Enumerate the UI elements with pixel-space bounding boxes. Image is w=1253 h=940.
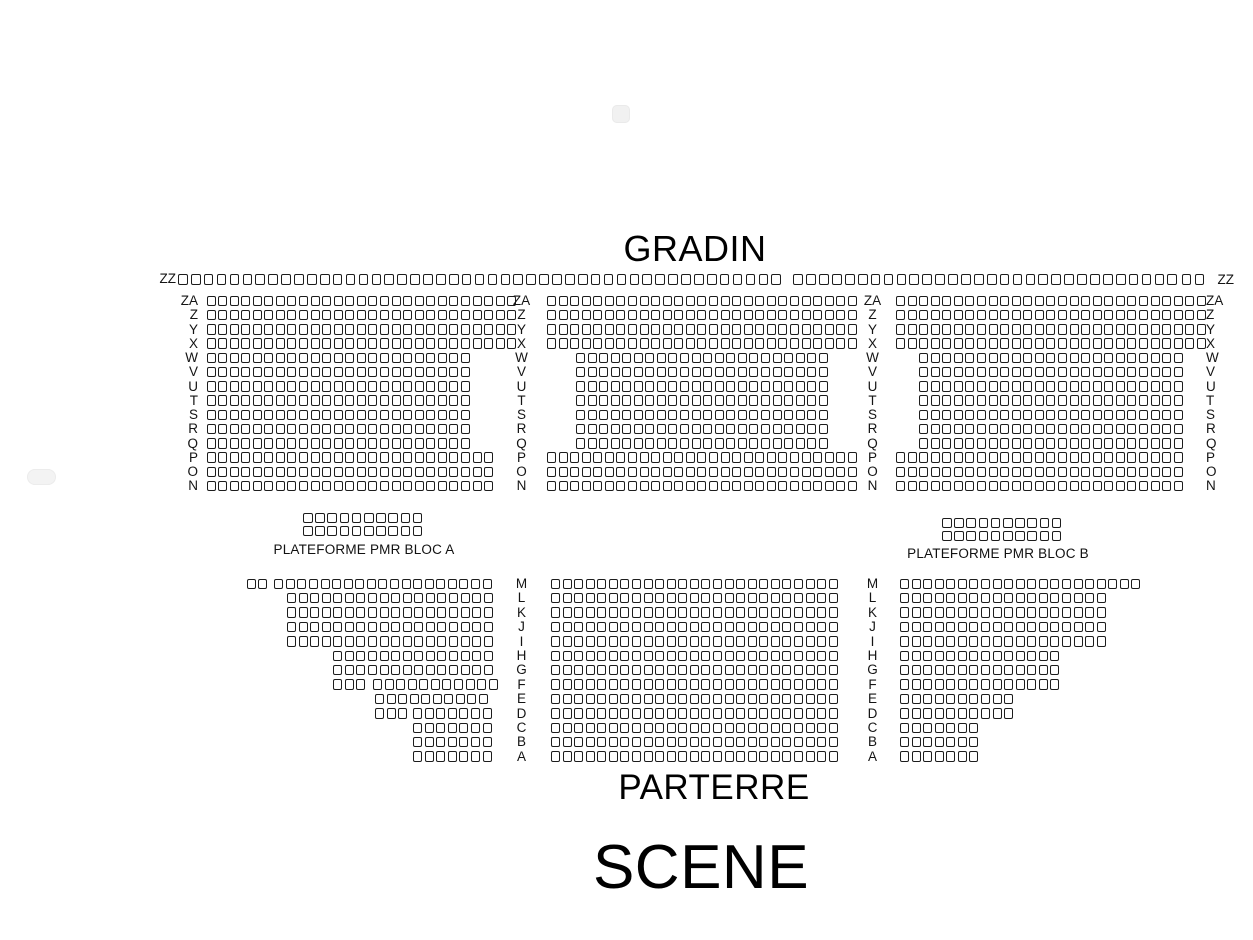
seat[interactable] (912, 579, 921, 590)
seat[interactable] (813, 338, 822, 349)
seat[interactable] (438, 353, 447, 364)
seat[interactable] (321, 579, 330, 590)
seat[interactable] (977, 310, 986, 321)
seat[interactable] (732, 338, 741, 349)
seat[interactable] (738, 395, 747, 406)
seat[interactable] (1023, 353, 1032, 364)
seat[interactable] (657, 395, 666, 406)
seat[interactable] (680, 353, 689, 364)
seat[interactable] (701, 679, 710, 690)
seat[interactable] (563, 737, 572, 748)
seat[interactable] (380, 395, 389, 406)
seat[interactable] (790, 481, 799, 492)
seat[interactable] (333, 665, 342, 676)
seat[interactable] (415, 410, 424, 421)
seat[interactable] (958, 751, 967, 762)
seat[interactable] (807, 353, 816, 364)
seat[interactable] (287, 636, 296, 647)
seat[interactable] (413, 513, 423, 523)
seat[interactable] (989, 452, 998, 463)
seat[interactable] (931, 481, 940, 492)
seat[interactable] (415, 452, 424, 463)
seat[interactable] (241, 324, 250, 335)
seat[interactable] (1027, 607, 1036, 618)
seat[interactable] (979, 531, 989, 541)
seat[interactable] (942, 381, 951, 392)
seat[interactable] (276, 353, 285, 364)
seat[interactable] (334, 367, 343, 378)
seat[interactable] (449, 636, 458, 647)
seat[interactable] (368, 438, 377, 449)
seat[interactable] (1081, 338, 1090, 349)
seat[interactable] (912, 651, 921, 662)
seat[interactable] (1023, 395, 1032, 406)
seat[interactable] (836, 467, 845, 478)
seat[interactable] (586, 665, 595, 676)
seat[interactable] (1085, 579, 1094, 590)
seat[interactable] (1004, 636, 1013, 647)
seat[interactable] (655, 708, 664, 719)
seat[interactable] (725, 694, 734, 705)
seat[interactable] (622, 410, 631, 421)
seat[interactable] (736, 737, 745, 748)
seat[interactable] (697, 452, 706, 463)
seat[interactable] (935, 579, 944, 590)
seat[interactable] (807, 438, 816, 449)
seat[interactable] (935, 723, 944, 734)
seat[interactable] (923, 694, 932, 705)
seat[interactable] (1103, 274, 1113, 285)
seat[interactable] (207, 296, 216, 307)
seat[interactable] (1162, 310, 1171, 321)
seat[interactable] (1035, 481, 1044, 492)
seat[interactable] (477, 679, 486, 690)
seat[interactable] (782, 751, 791, 762)
seat[interactable] (461, 438, 470, 449)
seat[interactable] (489, 679, 498, 690)
seat[interactable] (1004, 607, 1013, 618)
seat[interactable] (620, 723, 629, 734)
seat[interactable] (1167, 274, 1177, 285)
seat[interactable] (471, 737, 480, 748)
seat[interactable] (1085, 622, 1094, 633)
seat[interactable] (989, 381, 998, 392)
seat[interactable] (667, 723, 676, 734)
seat[interactable] (253, 381, 262, 392)
seat[interactable] (483, 723, 492, 734)
seat[interactable] (345, 622, 354, 633)
seat[interactable] (605, 481, 614, 492)
seat[interactable] (736, 694, 745, 705)
seat[interactable] (692, 367, 701, 378)
seat[interactable] (825, 324, 834, 335)
seat[interactable] (794, 751, 803, 762)
seat[interactable] (570, 324, 579, 335)
seat[interactable] (586, 694, 595, 705)
seat[interactable] (287, 353, 296, 364)
seat[interactable] (436, 274, 446, 285)
seat[interactable] (526, 274, 536, 285)
seat[interactable] (449, 410, 458, 421)
seat[interactable] (954, 395, 963, 406)
seat[interactable] (449, 452, 458, 463)
seat[interactable] (403, 467, 412, 478)
seat[interactable] (207, 410, 216, 421)
seat[interactable] (344, 579, 353, 590)
seat[interactable] (311, 381, 320, 392)
seat[interactable] (345, 367, 354, 378)
seat[interactable] (1127, 338, 1136, 349)
seat[interactable] (703, 410, 712, 421)
seat[interactable] (484, 607, 493, 618)
seat[interactable] (782, 679, 791, 690)
seat[interactable] (425, 708, 434, 719)
seat[interactable] (1027, 651, 1036, 662)
seat[interactable] (634, 424, 643, 435)
seat[interactable] (736, 651, 745, 662)
seat[interactable] (364, 526, 374, 536)
seat[interactable] (605, 467, 614, 478)
seat[interactable] (697, 481, 706, 492)
seat[interactable] (276, 410, 285, 421)
seat[interactable] (413, 751, 422, 762)
seat[interactable] (680, 395, 689, 406)
seat[interactable] (965, 481, 974, 492)
seat[interactable] (713, 694, 722, 705)
seat[interactable] (908, 310, 917, 321)
seat[interactable] (954, 381, 963, 392)
seat[interactable] (919, 310, 928, 321)
seat[interactable] (912, 665, 921, 676)
seat[interactable] (644, 708, 653, 719)
seat[interactable] (1046, 310, 1055, 321)
seat[interactable] (1062, 622, 1071, 633)
seat[interactable] (782, 636, 791, 647)
seat[interactable] (345, 338, 354, 349)
seat[interactable] (392, 367, 401, 378)
seat[interactable] (942, 310, 951, 321)
seat[interactable] (413, 526, 423, 536)
seat[interactable] (1127, 424, 1136, 435)
seat[interactable] (437, 665, 446, 676)
seat[interactable] (230, 324, 239, 335)
seat[interactable] (942, 531, 952, 541)
seat[interactable] (403, 607, 412, 618)
seat[interactable] (935, 274, 945, 285)
seat[interactable] (484, 481, 493, 492)
seat[interactable] (977, 367, 986, 378)
seat[interactable] (287, 381, 296, 392)
seat[interactable] (958, 694, 967, 705)
seat[interactable] (802, 310, 811, 321)
seat[interactable] (426, 324, 435, 335)
seat[interactable] (782, 708, 791, 719)
seat[interactable] (380, 651, 389, 662)
seat[interactable] (825, 481, 834, 492)
seat[interactable] (1070, 481, 1079, 492)
seat[interactable] (977, 381, 986, 392)
seat[interactable] (794, 622, 803, 633)
seat[interactable] (586, 737, 595, 748)
seat[interactable] (392, 324, 401, 335)
seat[interactable] (1058, 310, 1067, 321)
seat[interactable] (655, 723, 664, 734)
seat[interactable] (1093, 410, 1102, 421)
seat[interactable] (484, 665, 493, 676)
seat[interactable] (472, 622, 481, 633)
seat[interactable] (697, 324, 706, 335)
seat[interactable] (609, 708, 618, 719)
seat[interactable] (462, 274, 472, 285)
seat[interactable] (993, 708, 1002, 719)
seat[interactable] (551, 737, 560, 748)
seat[interactable] (436, 751, 445, 762)
seat[interactable] (449, 338, 458, 349)
seat[interactable] (449, 381, 458, 392)
seat[interactable] (609, 593, 618, 604)
seat[interactable] (738, 381, 747, 392)
seat[interactable] (946, 636, 955, 647)
seat[interactable] (644, 737, 653, 748)
seat[interactable] (461, 381, 470, 392)
seat[interactable] (1016, 579, 1025, 590)
seat[interactable] (230, 296, 239, 307)
seat[interactable] (726, 381, 735, 392)
seat[interactable] (307, 274, 317, 285)
seat[interactable] (368, 424, 377, 435)
seat[interactable] (438, 296, 447, 307)
seat[interactable] (725, 593, 734, 604)
seat[interactable] (726, 424, 735, 435)
seat[interactable] (1012, 438, 1021, 449)
seat[interactable] (989, 410, 998, 421)
seat[interactable] (634, 381, 643, 392)
seat[interactable] (807, 395, 816, 406)
seat[interactable] (345, 310, 354, 321)
seat[interactable] (437, 651, 446, 662)
seat[interactable] (993, 579, 1002, 590)
seat[interactable] (1035, 395, 1044, 406)
seat[interactable] (935, 679, 944, 690)
seat[interactable] (449, 593, 458, 604)
seat[interactable] (355, 579, 364, 590)
seat[interactable] (697, 467, 706, 478)
seat[interactable] (701, 607, 710, 618)
seat[interactable] (563, 751, 572, 762)
seat[interactable] (686, 481, 695, 492)
seat[interactable] (576, 410, 585, 421)
seat[interactable] (802, 324, 811, 335)
seat[interactable] (690, 723, 699, 734)
seat[interactable] (310, 607, 319, 618)
seat[interactable] (303, 526, 313, 536)
seat[interactable] (311, 438, 320, 449)
seat[interactable] (667, 665, 676, 676)
seat[interactable] (991, 531, 1001, 541)
seat[interactable] (620, 636, 629, 647)
seat[interactable] (391, 651, 400, 662)
seat[interactable] (794, 723, 803, 734)
seat[interactable] (678, 665, 687, 676)
seat[interactable] (426, 438, 435, 449)
seat[interactable] (954, 367, 963, 378)
seat[interactable] (836, 338, 845, 349)
seat[interactable] (388, 526, 398, 536)
seat[interactable] (771, 723, 780, 734)
seat[interactable] (686, 467, 695, 478)
seat[interactable] (748, 622, 757, 633)
seat[interactable] (1174, 481, 1183, 492)
seat[interactable] (1046, 467, 1055, 478)
seat[interactable] (207, 338, 216, 349)
seat[interactable] (690, 622, 699, 633)
seat[interactable] (1162, 395, 1171, 406)
seat[interactable] (1127, 410, 1136, 421)
seat[interactable] (449, 651, 458, 662)
seat[interactable] (582, 338, 591, 349)
seat[interactable] (367, 579, 376, 590)
seat[interactable] (1162, 452, 1171, 463)
seat[interactable] (287, 296, 296, 307)
seat[interactable] (1174, 353, 1183, 364)
seat[interactable] (391, 665, 400, 676)
seat[interactable] (287, 467, 296, 478)
seat[interactable] (748, 708, 757, 719)
seat[interactable] (230, 481, 239, 492)
seat[interactable] (415, 424, 424, 435)
seat[interactable] (794, 593, 803, 604)
seat[interactable] (771, 636, 780, 647)
seat[interactable] (819, 367, 828, 378)
seat[interactable] (829, 708, 838, 719)
seat[interactable] (651, 467, 660, 478)
seat[interactable] (632, 651, 641, 662)
seat[interactable] (703, 395, 712, 406)
seat[interactable] (829, 737, 838, 748)
seat[interactable] (380, 481, 389, 492)
seat[interactable] (414, 651, 423, 662)
seat[interactable] (368, 651, 377, 662)
seat[interactable] (644, 651, 653, 662)
seat[interactable] (357, 381, 366, 392)
seat[interactable] (782, 723, 791, 734)
seat[interactable] (935, 751, 944, 762)
seat[interactable] (1162, 467, 1171, 478)
seat[interactable] (264, 338, 273, 349)
seat[interactable] (1093, 353, 1102, 364)
seat[interactable] (1127, 296, 1136, 307)
seat[interactable] (484, 324, 493, 335)
seat[interactable] (644, 607, 653, 618)
seat[interactable] (744, 452, 753, 463)
seat[interactable] (448, 579, 457, 590)
seat[interactable] (644, 665, 653, 676)
seat[interactable] (1174, 296, 1183, 307)
seat[interactable] (725, 723, 734, 734)
seat[interactable] (1104, 367, 1113, 378)
seat[interactable] (456, 694, 465, 705)
seat[interactable] (701, 708, 710, 719)
seat[interactable] (721, 310, 730, 321)
seat[interactable] (790, 338, 799, 349)
seat[interactable] (1062, 579, 1071, 590)
seat[interactable] (981, 708, 990, 719)
seat[interactable] (703, 381, 712, 392)
seat[interactable] (436, 579, 445, 590)
seat[interactable] (484, 467, 493, 478)
seat[interactable] (782, 665, 791, 676)
seat[interactable] (900, 622, 909, 633)
seat[interactable] (678, 593, 687, 604)
seat[interactable] (415, 353, 424, 364)
seat[interactable] (993, 607, 1002, 618)
seat[interactable] (322, 381, 331, 392)
seat[interactable] (241, 424, 250, 435)
seat[interactable] (767, 338, 776, 349)
seat[interactable] (426, 467, 435, 478)
seat[interactable] (1050, 607, 1059, 618)
seat[interactable] (1081, 467, 1090, 478)
seat[interactable] (461, 410, 470, 421)
seat[interactable] (942, 395, 951, 406)
seat[interactable] (380, 381, 389, 392)
seat[interactable] (1027, 665, 1036, 676)
seat[interactable] (473, 310, 482, 321)
seat[interactable] (1023, 338, 1032, 349)
seat[interactable] (459, 579, 468, 590)
seat[interactable] (588, 424, 597, 435)
seat[interactable] (380, 410, 389, 421)
seat[interactable] (771, 622, 780, 633)
seat[interactable] (806, 665, 815, 676)
seat[interactable] (1035, 438, 1044, 449)
seat[interactable] (807, 424, 816, 435)
seat[interactable] (247, 579, 256, 590)
seat[interactable] (701, 665, 710, 676)
seat[interactable] (813, 296, 822, 307)
seat[interactable] (368, 395, 377, 406)
seat[interactable] (345, 296, 354, 307)
seat[interactable] (807, 367, 816, 378)
seat[interactable] (276, 338, 285, 349)
seat[interactable] (357, 424, 366, 435)
seat[interactable] (1058, 367, 1067, 378)
seat[interactable] (352, 513, 362, 523)
seat[interactable] (552, 274, 562, 285)
seat[interactable] (449, 324, 458, 335)
seat[interactable] (725, 636, 734, 647)
seat[interactable] (322, 636, 331, 647)
seat[interactable] (401, 513, 411, 523)
seat[interactable] (1015, 518, 1025, 528)
seat[interactable] (593, 452, 602, 463)
seat[interactable] (1093, 481, 1102, 492)
seat[interactable] (484, 452, 493, 463)
seat[interactable] (576, 424, 585, 435)
seat[interactable] (322, 310, 331, 321)
seat[interactable] (923, 665, 932, 676)
seat[interactable] (403, 310, 412, 321)
seat[interactable] (605, 296, 614, 307)
seat[interactable] (207, 367, 216, 378)
seat[interactable] (668, 353, 677, 364)
seat[interactable] (900, 665, 909, 676)
seat[interactable] (334, 467, 343, 478)
seat[interactable] (1070, 395, 1079, 406)
seat[interactable] (942, 438, 951, 449)
seat[interactable] (836, 324, 845, 335)
seat[interactable] (410, 694, 419, 705)
